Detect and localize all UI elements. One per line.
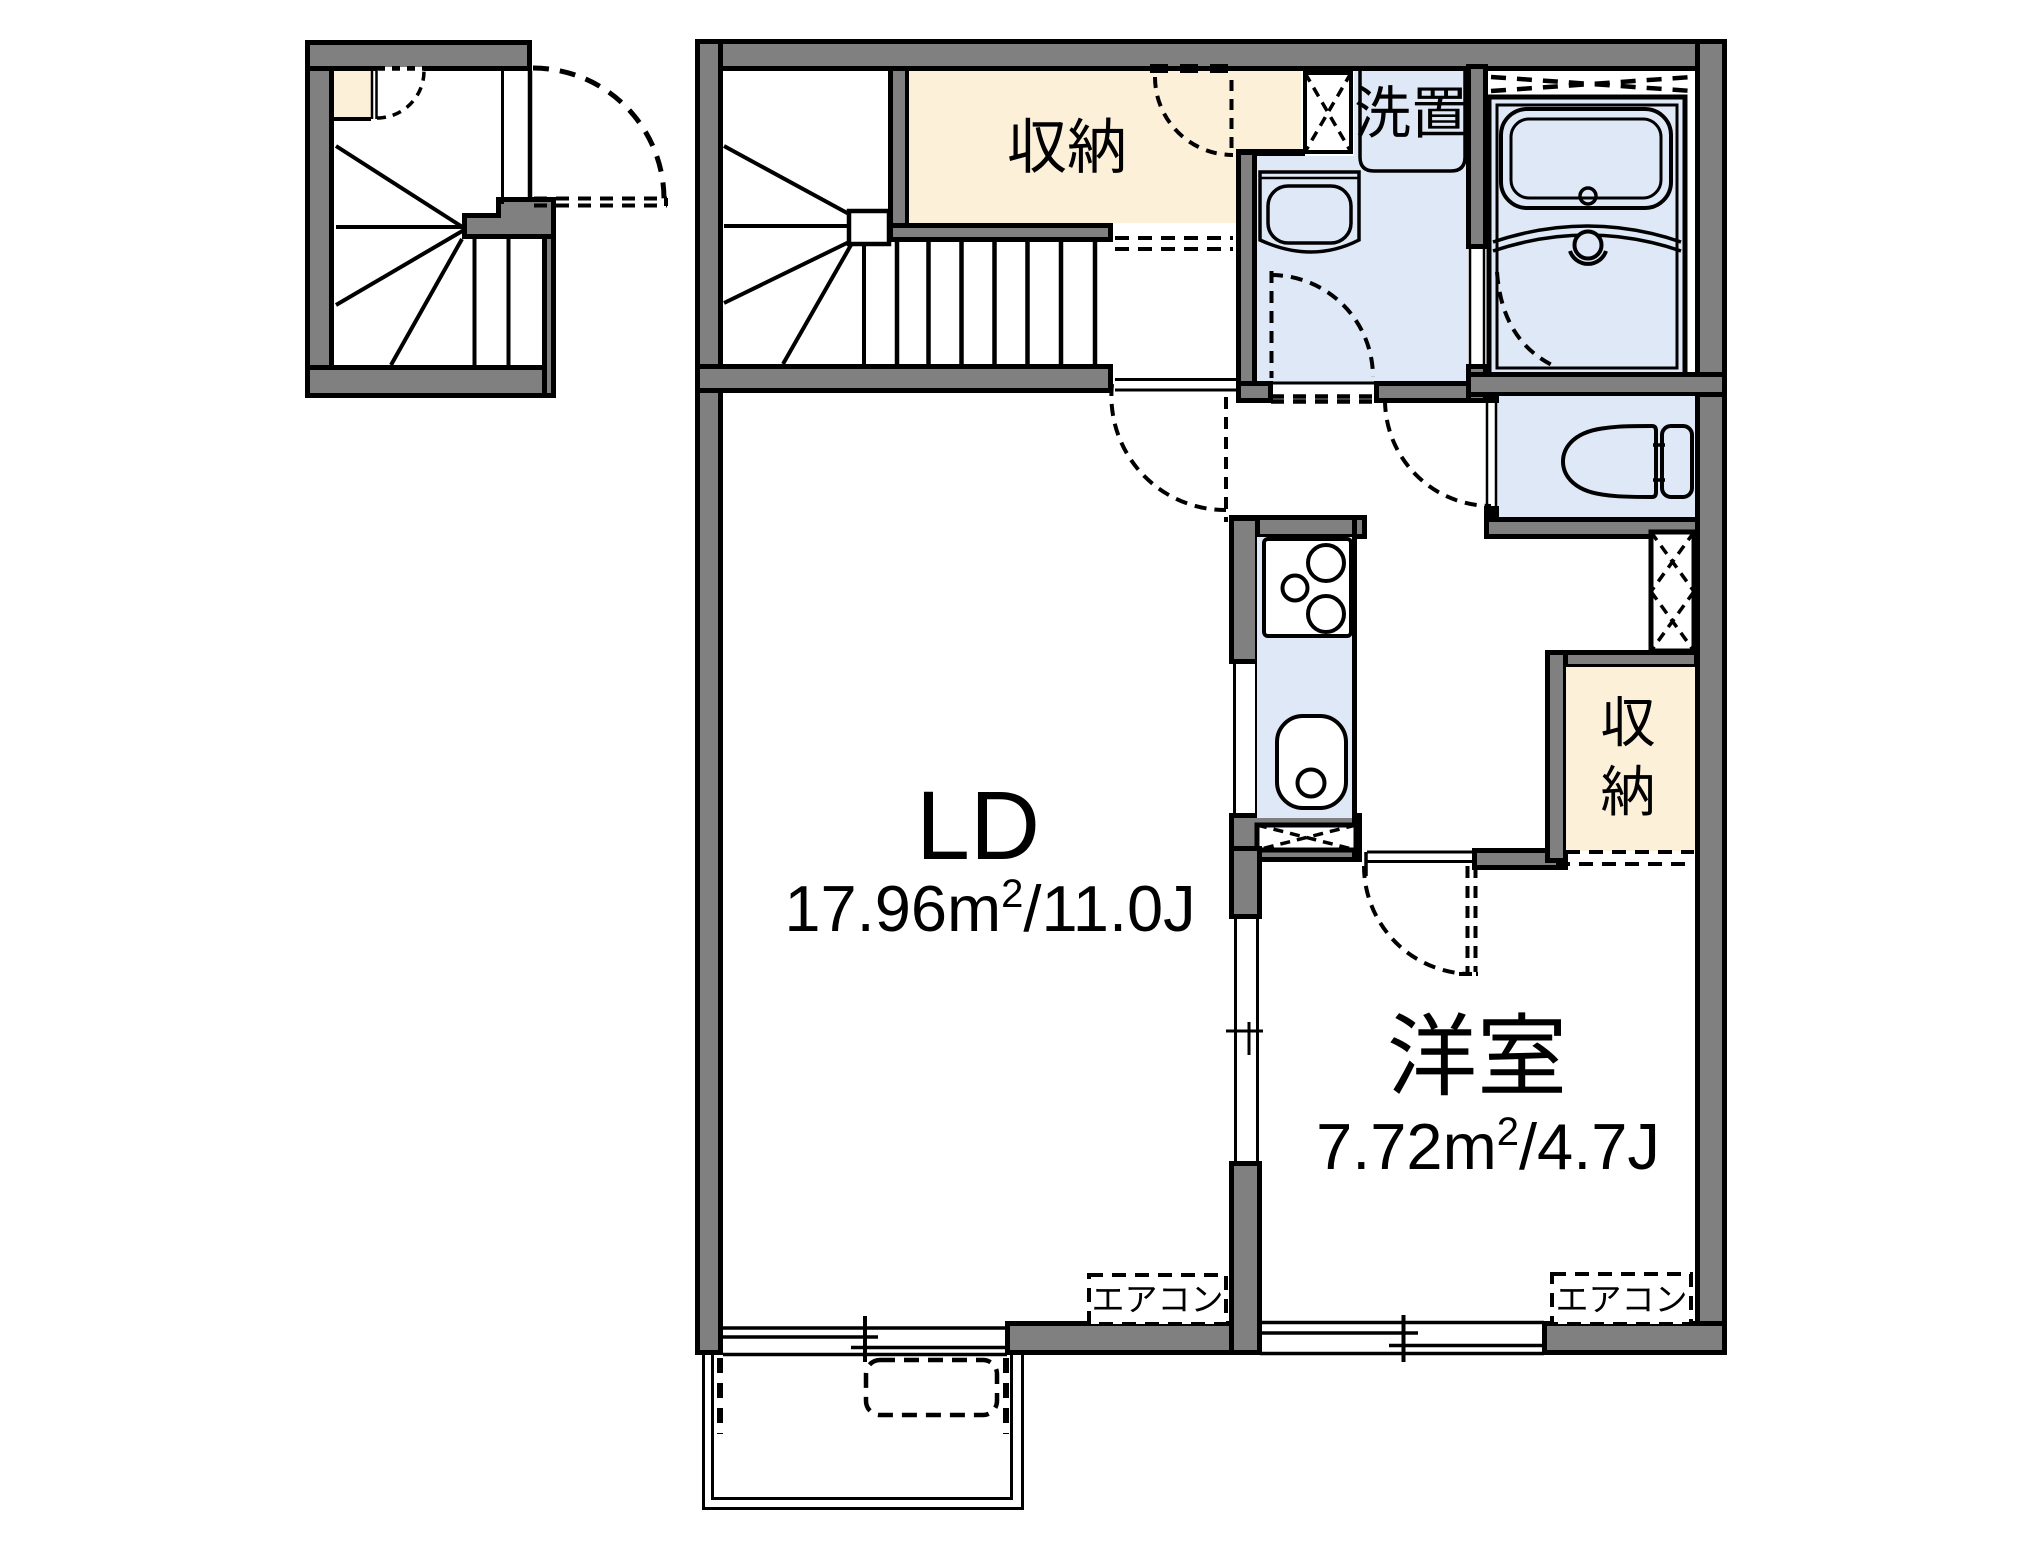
svg-text:7.72m2/4.7J: 7.72m2/4.7J [1316, 1110, 1660, 1183]
svg-text:17.96m2/11.0J: 17.96m2/11.0J [784, 872, 1195, 945]
svg-text:LD: LD [916, 771, 1040, 880]
